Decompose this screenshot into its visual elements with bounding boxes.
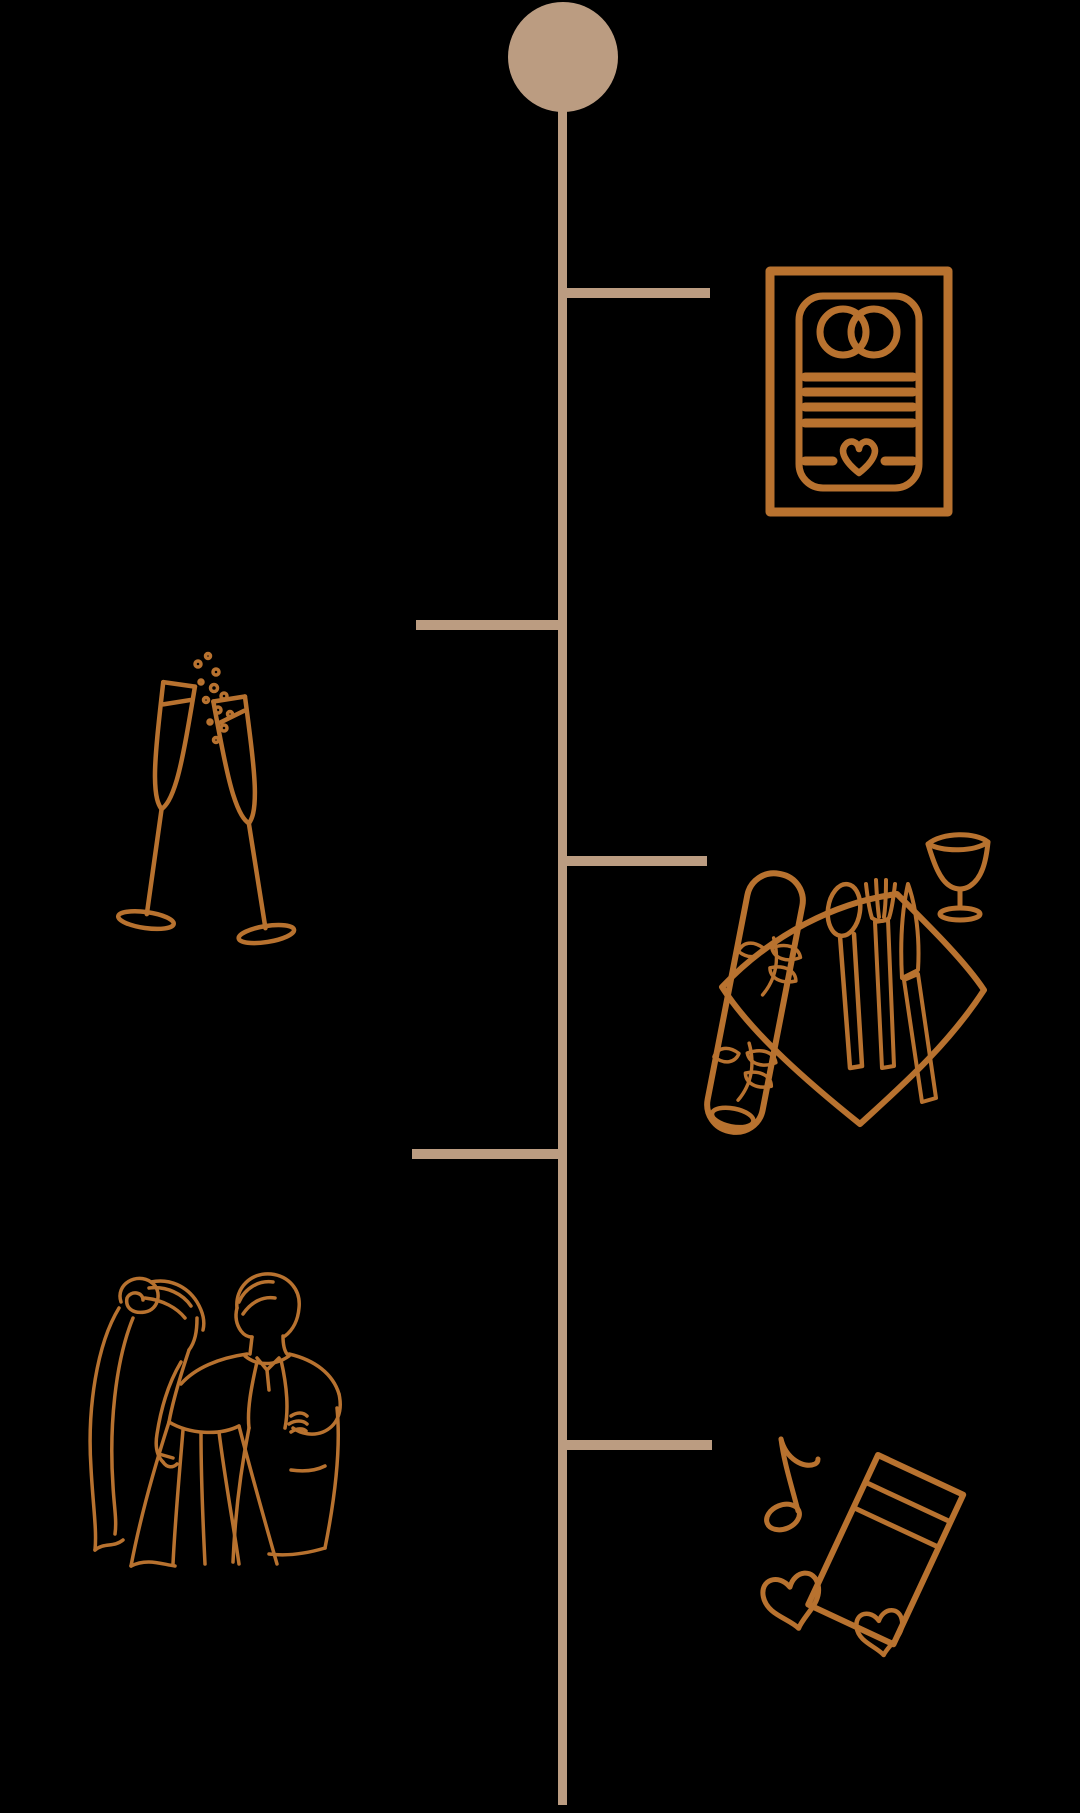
invitation-footer [805,442,913,473]
timeline-branch-4 [412,1149,567,1159]
party-card [808,1455,963,1644]
champagne-bubbles [195,654,233,743]
wine-glass-icon [928,835,988,920]
music-hearts-icon [750,1425,1040,1665]
champagne-flute-right [201,695,295,947]
invitation-text-lines [805,377,913,423]
timeline-branch-1 [558,288,710,298]
timeline-spine [558,57,567,1805]
music-note-icon [763,1439,818,1534]
timeline-branch-3 [558,856,707,866]
timeline-branch-5 [558,1440,712,1450]
heart-large-icon [760,1571,826,1634]
champagne-toast-icon [98,652,298,957]
table-setting-icon [712,822,1012,1157]
champagne-flute-left [117,680,207,931]
interlocked-rings-icon [820,309,897,355]
wedding-timeline-graphic [0,0,1080,1813]
fork-icon [866,880,895,1068]
timeline-branch-2 [416,620,567,630]
wedding-invitation-icon [765,266,953,517]
bride-skirt [131,1422,169,1566]
rolled-napkin [701,868,816,1138]
heart-icon [843,442,875,473]
heart-small-icon [855,1609,907,1658]
first-dance-icon [85,1258,355,1576]
